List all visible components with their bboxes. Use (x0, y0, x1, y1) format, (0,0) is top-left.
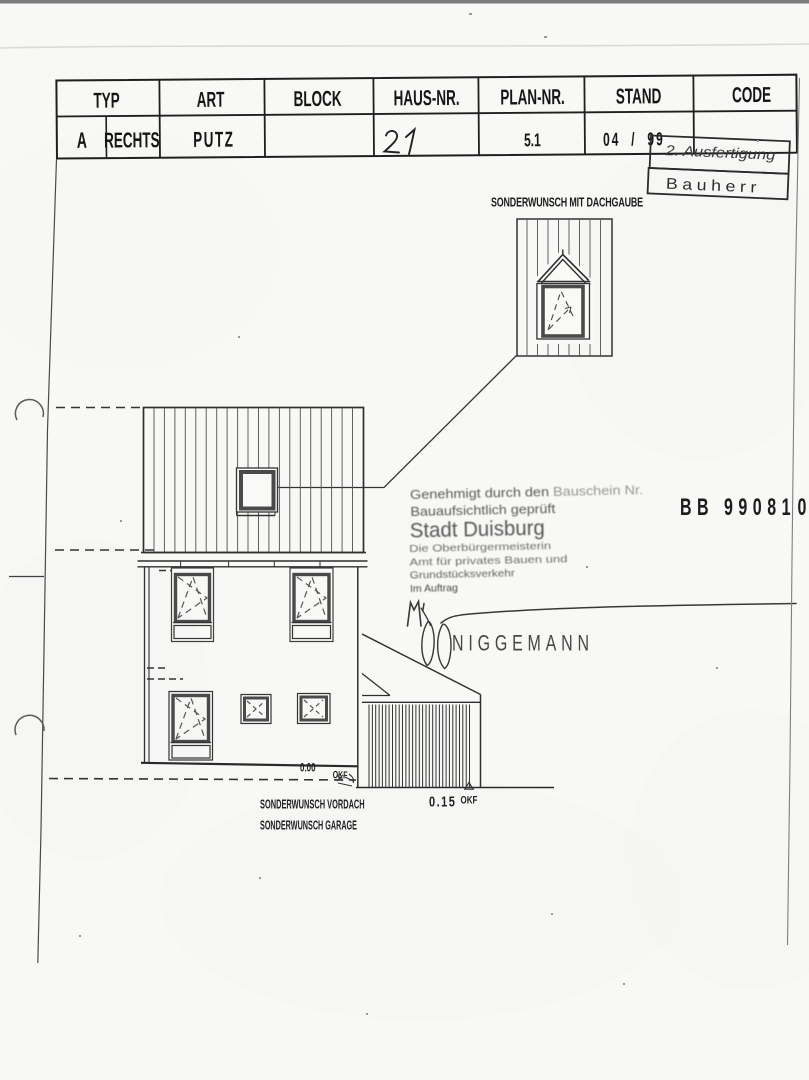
svg-text:PLAN-NR.: PLAN-NR. (500, 85, 565, 109)
svg-text:HAUS-NR.: HAUS-NR. (393, 86, 459, 111)
svg-text:TYP: TYP (93, 88, 119, 112)
svg-text:ART: ART (197, 87, 225, 111)
svg-text:CODE: CODE (732, 83, 771, 107)
svg-text:Stadt Duisburg: Stadt Duisburg (410, 517, 545, 543)
svg-text:NIGGEMANN: NIGGEMANN (452, 631, 594, 656)
svg-text:BLOCK: BLOCK (293, 87, 341, 111)
svg-text:0.00: 0.00 (300, 762, 316, 775)
svg-text:PUTZ: PUTZ (193, 127, 234, 151)
svg-text:A: A (77, 127, 87, 152)
svg-text:Im Auftrag: Im Auftrag (410, 582, 458, 595)
svg-text:RECHTS: RECHTS (104, 128, 160, 152)
svg-text:SONDERWUNSCH GARAGE: SONDERWUNSCH GARAGE (260, 820, 357, 833)
svg-text:OKF: OKF (461, 794, 478, 807)
svg-text:04 / 99: 04 / 99 (603, 130, 665, 151)
svg-text:5.1: 5.1 (524, 131, 541, 151)
svg-text:Grundstücksverkehr: Grundstücksverkehr (410, 567, 516, 581)
svg-text:0.15: 0.15 (429, 793, 456, 810)
svg-text:STAND: STAND (616, 84, 662, 108)
svg-text:0: 0 (798, 495, 807, 521)
svg-text:SONDERWUNSCH MIT DACHGAUBE: SONDERWUNSCH MIT DACHGAUBE (491, 196, 643, 210)
svg-text:BB 99081: BB 99081 (680, 495, 796, 521)
svg-text:SONDERWUNSCH VORDACH: SONDERWUNSCH VORDACH (260, 799, 365, 812)
